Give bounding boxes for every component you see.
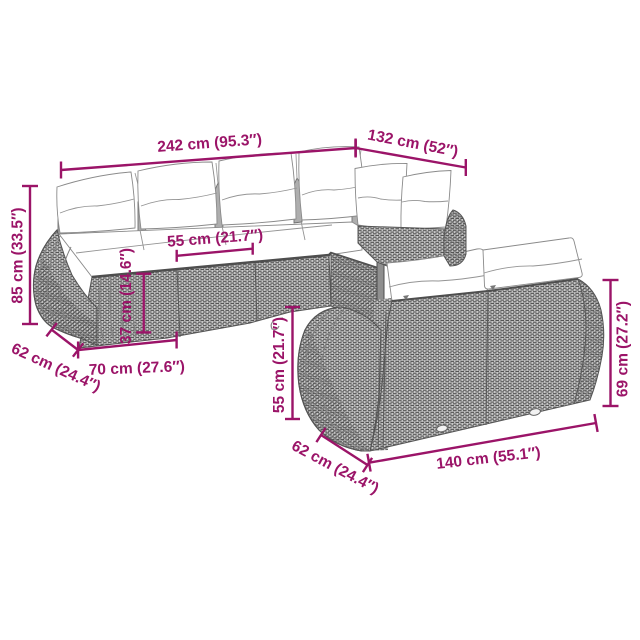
svg-text:132 cm (52″): 132 cm (52″) [366, 127, 459, 161]
svg-text:85 cm (33.5″): 85 cm (33.5″) [10, 207, 27, 303]
svg-text:55 cm (21.7″): 55 cm (21.7″) [271, 317, 288, 413]
svg-text:70 cm (27.6″): 70 cm (27.6″) [88, 358, 185, 379]
svg-text:242 cm (95.3″): 242 cm (95.3″) [157, 131, 263, 156]
svg-text:69 cm (27.2″): 69 cm (27.2″) [615, 301, 632, 397]
svg-text:37 cm (14.6″): 37 cm (14.6″) [118, 248, 135, 344]
